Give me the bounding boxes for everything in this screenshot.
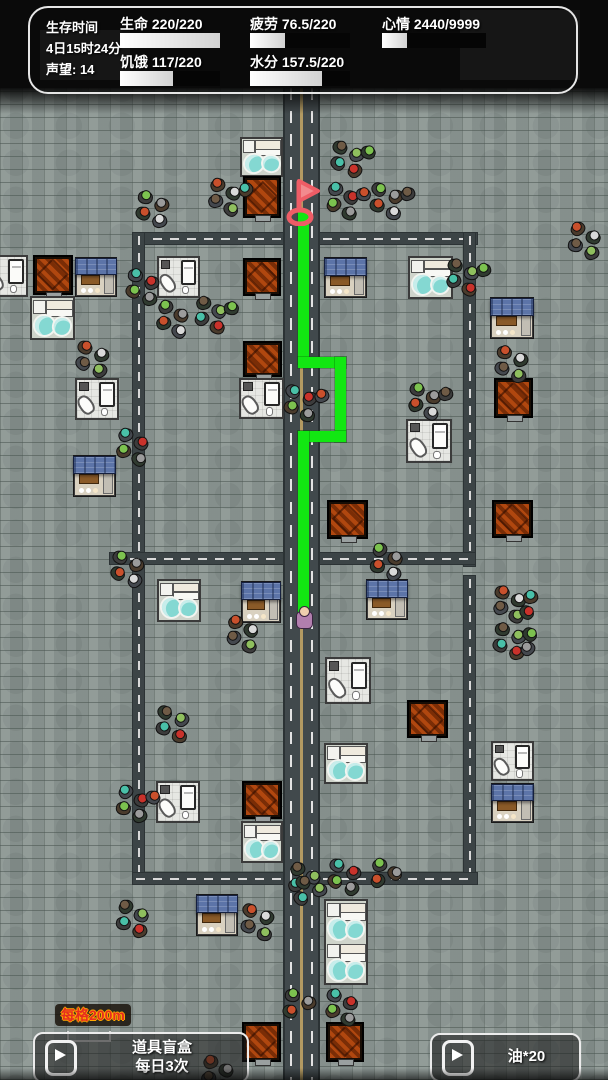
shop-building	[324, 257, 367, 298]
zombie-sprite	[154, 719, 172, 736]
zombie-sprite	[116, 426, 134, 444]
stat-mood-label: 心情	[382, 16, 410, 32]
zombie-sprite	[208, 318, 226, 335]
zombie-sprite	[355, 186, 371, 201]
zombie-sprite	[345, 864, 362, 880]
oil-button-label: 油*20	[474, 1048, 579, 1067]
zombie-sprite	[191, 309, 210, 328]
bedroom-building	[325, 657, 371, 704]
zombie-sprite	[491, 635, 510, 653]
crate-building	[492, 500, 533, 538]
zombie-sprite	[299, 407, 315, 422]
zombie-sprite	[227, 613, 244, 629]
zombie-sprite	[496, 344, 512, 359]
play-icon	[45, 1040, 77, 1076]
zombie-sprite	[195, 294, 212, 310]
route-path-segment	[298, 212, 309, 364]
bath-building	[157, 579, 201, 622]
stat-hunger-label: 饥饿	[120, 54, 148, 70]
stat-health-value: 220/220	[152, 16, 203, 32]
survival-time-value: 4日15时24分	[46, 38, 121, 59]
player-head	[299, 606, 310, 617]
stat-health: 生命 220/220	[120, 14, 270, 48]
player-character	[296, 606, 312, 628]
game-map[interactable]	[0, 0, 608, 1080]
zombie-sprite	[493, 583, 511, 600]
crate-building	[326, 1022, 364, 1062]
zombie-sprite	[208, 176, 226, 194]
zombie-sprite	[331, 137, 350, 155]
zombie-sprite	[371, 856, 388, 872]
zombie-sprite	[115, 897, 134, 916]
crate-building	[327, 500, 368, 539]
zombie-sprite	[221, 199, 240, 218]
zombie-sprite	[239, 917, 257, 934]
zombie-sprite	[493, 358, 512, 376]
zombie-sprite	[130, 922, 148, 940]
zombie-sprite	[325, 986, 343, 1003]
zombie-sprite	[171, 728, 187, 743]
zombie-sprite	[342, 995, 358, 1010]
bath-building	[240, 137, 283, 177]
blind-box-button-label: 道具盲盒 每日3次	[77, 1039, 247, 1077]
stat-water-bar	[250, 71, 350, 86]
destination-flag-marker	[285, 176, 325, 226]
zombie-sprite	[567, 219, 586, 238]
zombie-sprite	[223, 300, 239, 315]
reputation-value: 声望: 14	[46, 59, 121, 80]
stat-health-label: 生命	[120, 16, 148, 32]
zombie-sprite	[494, 621, 510, 636]
zombie-sprite	[491, 599, 509, 617]
stat-fatigue: 疲劳 76.5/220	[250, 14, 400, 48]
zombie-sprite	[207, 192, 224, 208]
zombie-sprite	[156, 298, 174, 316]
zombie-sprite	[223, 628, 242, 647]
stat-mood-bar	[382, 33, 486, 48]
zombie-sprite	[584, 228, 602, 245]
crate-building	[243, 341, 282, 377]
stat-mood: 心情 2440/9999	[382, 14, 532, 48]
zombie-sprite	[137, 189, 153, 204]
bedroom-building	[491, 741, 534, 781]
stat-health-bar	[120, 33, 220, 48]
bath2-building	[324, 899, 368, 985]
stat-hunger-value: 117/220	[152, 54, 202, 70]
shop-building	[196, 894, 238, 936]
shop-building	[241, 581, 281, 623]
shop-building	[73, 455, 116, 497]
zombie-sprite	[128, 556, 145, 572]
bedroom-building	[75, 378, 119, 420]
zombie-sprite	[115, 800, 131, 815]
crate-building	[494, 378, 533, 418]
zombie-sprite	[522, 588, 539, 604]
zombie-sprite	[172, 305, 191, 323]
street-lane	[464, 576, 475, 884]
zombie-sprite	[127, 267, 143, 282]
zombie-sprite	[134, 203, 153, 221]
crate-building	[33, 255, 73, 295]
zombie-sprite	[155, 314, 172, 330]
bath-building	[241, 821, 283, 863]
route-path-segment	[335, 357, 346, 442]
zombie-sprite	[115, 782, 134, 801]
zombie-sprite	[323, 1002, 341, 1020]
zombie-sprite	[406, 396, 424, 414]
oil-button[interactable]: 油*20	[430, 1033, 581, 1080]
zombie-sprite	[323, 195, 342, 214]
zombie-sprite	[141, 290, 158, 306]
zombie-sprite	[582, 244, 600, 262]
hud-info-column: 生存时间 4日15时24分 声望: 14	[46, 17, 121, 80]
game-screen: 生存时间 4日15时24分 声望: 14 生命 220/220 饥饿 117/2…	[0, 0, 608, 1080]
crate-building	[407, 700, 448, 738]
play-icon	[442, 1040, 474, 1076]
zombie-sprite	[369, 558, 385, 573]
zombie-sprite	[115, 915, 131, 930]
stat-water-label: 水分	[250, 54, 278, 70]
blind-box-button[interactable]: 道具盲盒 每日3次	[33, 1032, 249, 1080]
stat-water: 水分 157.5/220	[250, 52, 400, 86]
bedroom-building	[157, 256, 200, 298]
bath-building	[324, 743, 368, 784]
shop-building	[75, 257, 117, 297]
stat-fatigue-label: 疲劳	[250, 16, 278, 32]
route-path-segment	[298, 431, 309, 617]
stat-hunger: 饥饿 117/220	[120, 52, 270, 86]
bedroom-building	[406, 419, 452, 463]
zombie-sprite	[256, 926, 272, 941]
zombie-sprite	[368, 196, 386, 213]
zombie-sprite	[340, 204, 358, 221]
shop-building	[366, 579, 408, 620]
bath-building	[30, 296, 75, 340]
stat-fatigue-value: 76.5/220	[282, 16, 337, 32]
stat-water-value: 157.5/220	[282, 54, 344, 70]
zombie-sprite	[328, 855, 347, 873]
zombie-sprite	[567, 237, 583, 252]
bedroom-building	[0, 255, 28, 297]
zombie-sprite	[327, 180, 344, 196]
hud-panel: 生存时间 4日15时24分 声望: 14 生命 220/220 饥饿 117/2…	[28, 6, 578, 94]
zombie-sprite	[115, 442, 132, 458]
zombie-sprite	[311, 881, 328, 897]
crate-building	[242, 781, 282, 819]
zombie-sprite	[171, 710, 190, 729]
shop-building	[491, 783, 534, 823]
zombie-sprite	[437, 385, 454, 401]
crate-building	[243, 258, 281, 296]
zombie-sprite	[151, 212, 168, 228]
zombie-sprite	[93, 346, 110, 362]
stat-mood-value: 2440/9999	[414, 16, 480, 32]
shop-building	[490, 297, 534, 339]
zombie-sprite	[344, 161, 363, 180]
zombie-sprite	[385, 205, 401, 220]
stat-fatigue-bar	[250, 33, 350, 48]
zombie-sprite	[510, 367, 527, 383]
zombie-sprite	[169, 321, 188, 340]
zombie-sprite	[132, 906, 150, 923]
map-scale-label: 每格200m	[55, 1004, 131, 1026]
zombie-sprite	[408, 380, 426, 397]
zombie-sprite	[240, 637, 258, 654]
stat-hunger-bar	[120, 71, 220, 86]
zombie-sprite	[76, 337, 95, 355]
zombie-sprite	[511, 351, 529, 369]
bedroom-building	[239, 378, 284, 419]
zombie-sprite	[460, 279, 479, 297]
survival-time-label: 生存时间	[46, 17, 121, 38]
zombie-sprite	[256, 908, 275, 927]
zombie-sprite	[475, 261, 492, 277]
zombie-sprite	[284, 987, 300, 1002]
bedroom-building	[156, 781, 200, 823]
zombie-sprite	[152, 196, 170, 214]
